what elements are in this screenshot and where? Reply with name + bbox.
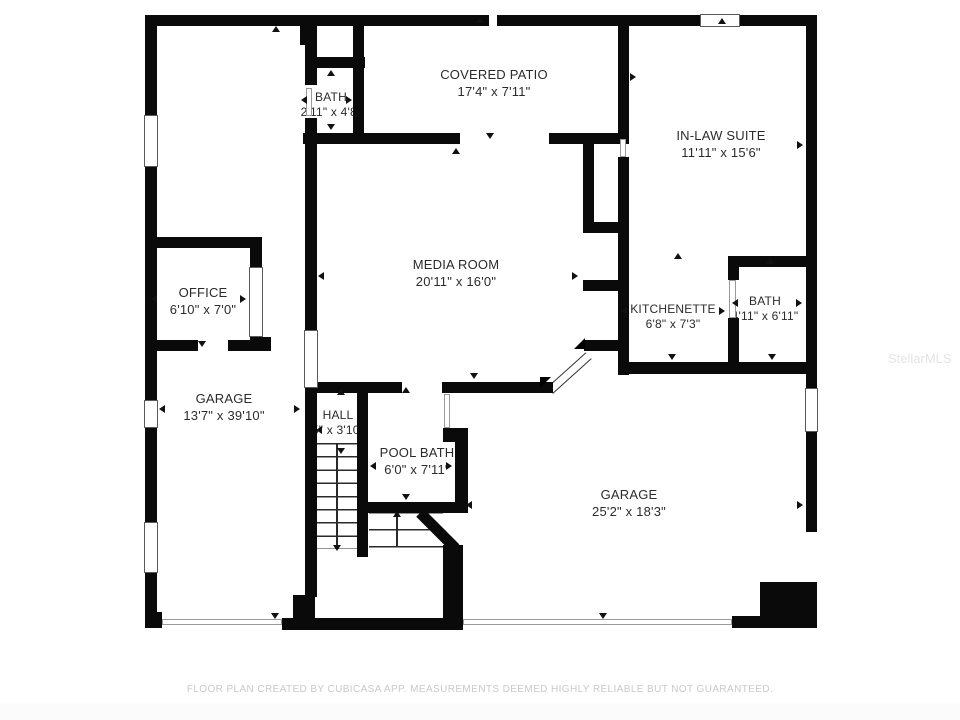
dimension-arrow [766,258,774,264]
wall [443,545,463,622]
room-name: BATH [732,294,799,309]
room-dims: 6'10" x 7'0" [170,301,236,318]
window-marker [805,388,818,432]
dimension-arrow [797,501,803,509]
dimension-arrow [198,341,206,347]
room-label-kitchenette: KITCHENETTE 6'8" x 7'3" [630,302,716,332]
dimension-arrow [327,124,335,130]
room-name: GARAGE [592,486,666,503]
dimension-arrow [466,501,472,509]
dimension-arrow [768,354,776,360]
wall [317,15,489,26]
dimension-arrow [476,17,484,23]
dimension-arrow [402,494,410,500]
wall [368,502,468,513]
wall [228,340,255,351]
dimension-arrow [346,96,352,104]
dimension-arrow [294,405,300,413]
wall [583,280,620,291]
window-marker [304,330,318,388]
entry-arrow-icon [574,338,585,349]
wall [303,133,460,144]
wall [728,256,739,280]
room-name: POOL BATH [380,444,455,461]
dimension-arrow [159,405,165,413]
dimension-arrow [151,295,157,303]
dimension-arrow [621,307,627,315]
dimension-arrow [797,141,803,149]
wall [618,15,629,137]
dimension-arrow [732,299,738,307]
room-name: KITCHENETTE [630,302,716,317]
wall [760,582,817,628]
stair-direction-line [396,517,398,547]
dimension-arrow [327,70,335,76]
dimension-arrow [599,613,607,619]
wall [250,237,262,267]
wall [150,340,198,351]
dimension-arrow [271,613,279,619]
room-label-garage-right: GARAGE 25'2" x 18'3" [592,486,666,520]
window-marker [249,267,263,337]
dimension-arrow [272,26,280,32]
room-dims: 11'11" x 15'6" [676,144,765,161]
dimension-arrow [402,387,410,393]
room-name: OFFICE [170,284,236,301]
dimension-arrow [337,389,345,395]
wall [145,573,157,618]
wall [583,143,594,231]
dimension-arrow [318,272,324,280]
room-name: MEDIA ROOM [413,256,500,273]
wall [618,15,700,26]
door-marker [620,139,626,157]
room-label-in-law-suite: IN-LAW SUITE 11'11" x 15'6" [676,127,765,161]
wall [145,167,157,400]
wall [357,382,368,557]
room-label-bath-right: BATH 4'11" x 6'11" [732,294,799,324]
dimension-arrow [370,462,376,470]
wall [305,388,317,597]
entry-arrow-icon [540,377,551,388]
dimension-arrow [452,148,460,154]
room-dims: 17'4" x 7'11" [440,83,548,100]
wall [293,595,315,628]
door-swing-marker [547,352,592,393]
stair-direction-line [336,443,338,545]
room-name: COVERED PATIO [440,66,548,83]
window-marker [144,115,158,167]
room-dims: 6'8" x 7'3" [630,317,716,332]
room-dims: 4'11" x 6'11" [732,309,799,324]
wall [145,237,257,248]
room-dims: 13'7" x 39'10" [183,407,264,424]
wall [303,618,463,630]
room-name: IN-LAW SUITE [676,127,765,144]
garage-door-marker [162,619,282,625]
window-marker [144,400,158,428]
dimension-arrow [316,426,322,434]
dimension-arrow [719,307,725,315]
wall [300,15,317,45]
dimension-arrow [337,448,345,454]
room-label-media-room: MEDIA ROOM 20'11" x 16'0" [413,256,500,290]
window-marker [144,522,158,573]
wall [806,432,817,532]
disclaimer-text: FLOOR PLAN CREATED BY CUBICASA APP. MEAS… [0,684,960,695]
room-dims: 20'11" x 16'0" [413,273,500,290]
dimension-arrow [796,299,802,307]
dimension-arrow [301,96,307,104]
room-label-covered-patio: COVERED PATIO 17'4" x 7'11" [440,66,548,100]
room-dims: 6'0" x 7'11" [380,461,455,478]
wall [145,15,157,115]
dimension-arrow [718,18,726,24]
wall [728,318,739,370]
dimension-arrow [486,133,494,139]
wall [145,15,300,26]
room-dims: 25'2" x 18'3" [592,503,666,520]
dimension-arrow [630,73,636,81]
dimension-arrow [572,272,578,280]
wall [584,340,629,351]
garage-door-marker [463,619,732,625]
dimension-arrow [674,253,682,259]
dimension-arrow [668,354,676,360]
stair-down-arrow-icon [333,545,341,551]
room-name: GARAGE [183,390,264,407]
wall [497,15,618,26]
floor-plan-image: BATH 2'11" x 4'8" COVERED PATIO 17'4" x … [0,0,960,720]
door-marker [444,394,450,428]
dimension-arrow [240,295,246,303]
wall [368,382,402,393]
room-label-office: OFFICE 6'10" x 7'0" [170,284,236,318]
wall [353,15,364,143]
wall [442,382,553,393]
dimension-arrow [446,462,452,470]
stair-up-arrow-icon [393,511,401,517]
room-label-pool-bath: POOL BATH 6'0" x 7'11" [380,444,455,478]
wall [583,222,629,233]
page-edge [0,703,960,720]
wall [618,362,817,374]
wall [806,15,817,388]
watermark: StellarMLS [888,351,952,366]
wall [732,616,762,628]
dimension-arrow [470,373,478,379]
room-label-garage-left: GARAGE 13'7" x 39'10" [183,390,264,424]
wall [305,118,317,330]
wall [145,428,157,522]
